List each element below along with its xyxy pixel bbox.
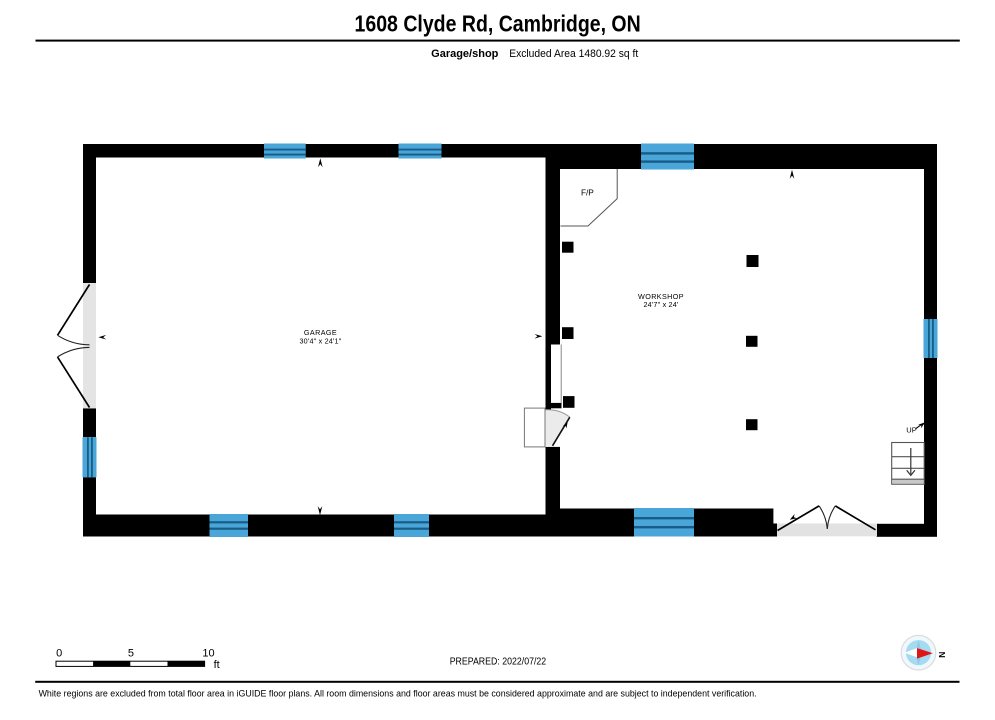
svg-text:5: 5: [128, 647, 134, 659]
svg-text:10: 10: [202, 647, 214, 659]
svg-text:PREPARED: 2022/07/22: PREPARED: 2022/07/22: [450, 657, 547, 668]
svg-text:UP: UP: [906, 426, 916, 435]
svg-text:ft: ft: [214, 659, 220, 671]
svg-text:N: N: [937, 652, 947, 658]
svg-text:30'4" x 24'1": 30'4" x 24'1": [299, 337, 341, 346]
svg-text:1608 Clyde Rd, Cambridge, ON: 1608 Clyde Rd, Cambridge, ON: [355, 10, 641, 36]
svg-text:F/P: F/P: [581, 188, 594, 198]
svg-text:GARAGE: GARAGE: [304, 328, 337, 337]
svg-text:0: 0: [56, 647, 62, 659]
svg-text:White regions are excluded fro: White regions are excluded from total fl…: [39, 688, 757, 698]
svg-text:24'7" x 24': 24'7" x 24': [643, 300, 678, 309]
svg-text:Excluded Area 1480.92 sq ft: Excluded Area 1480.92 sq ft: [509, 48, 638, 60]
svg-text:Garage/shop: Garage/shop: [431, 48, 499, 60]
